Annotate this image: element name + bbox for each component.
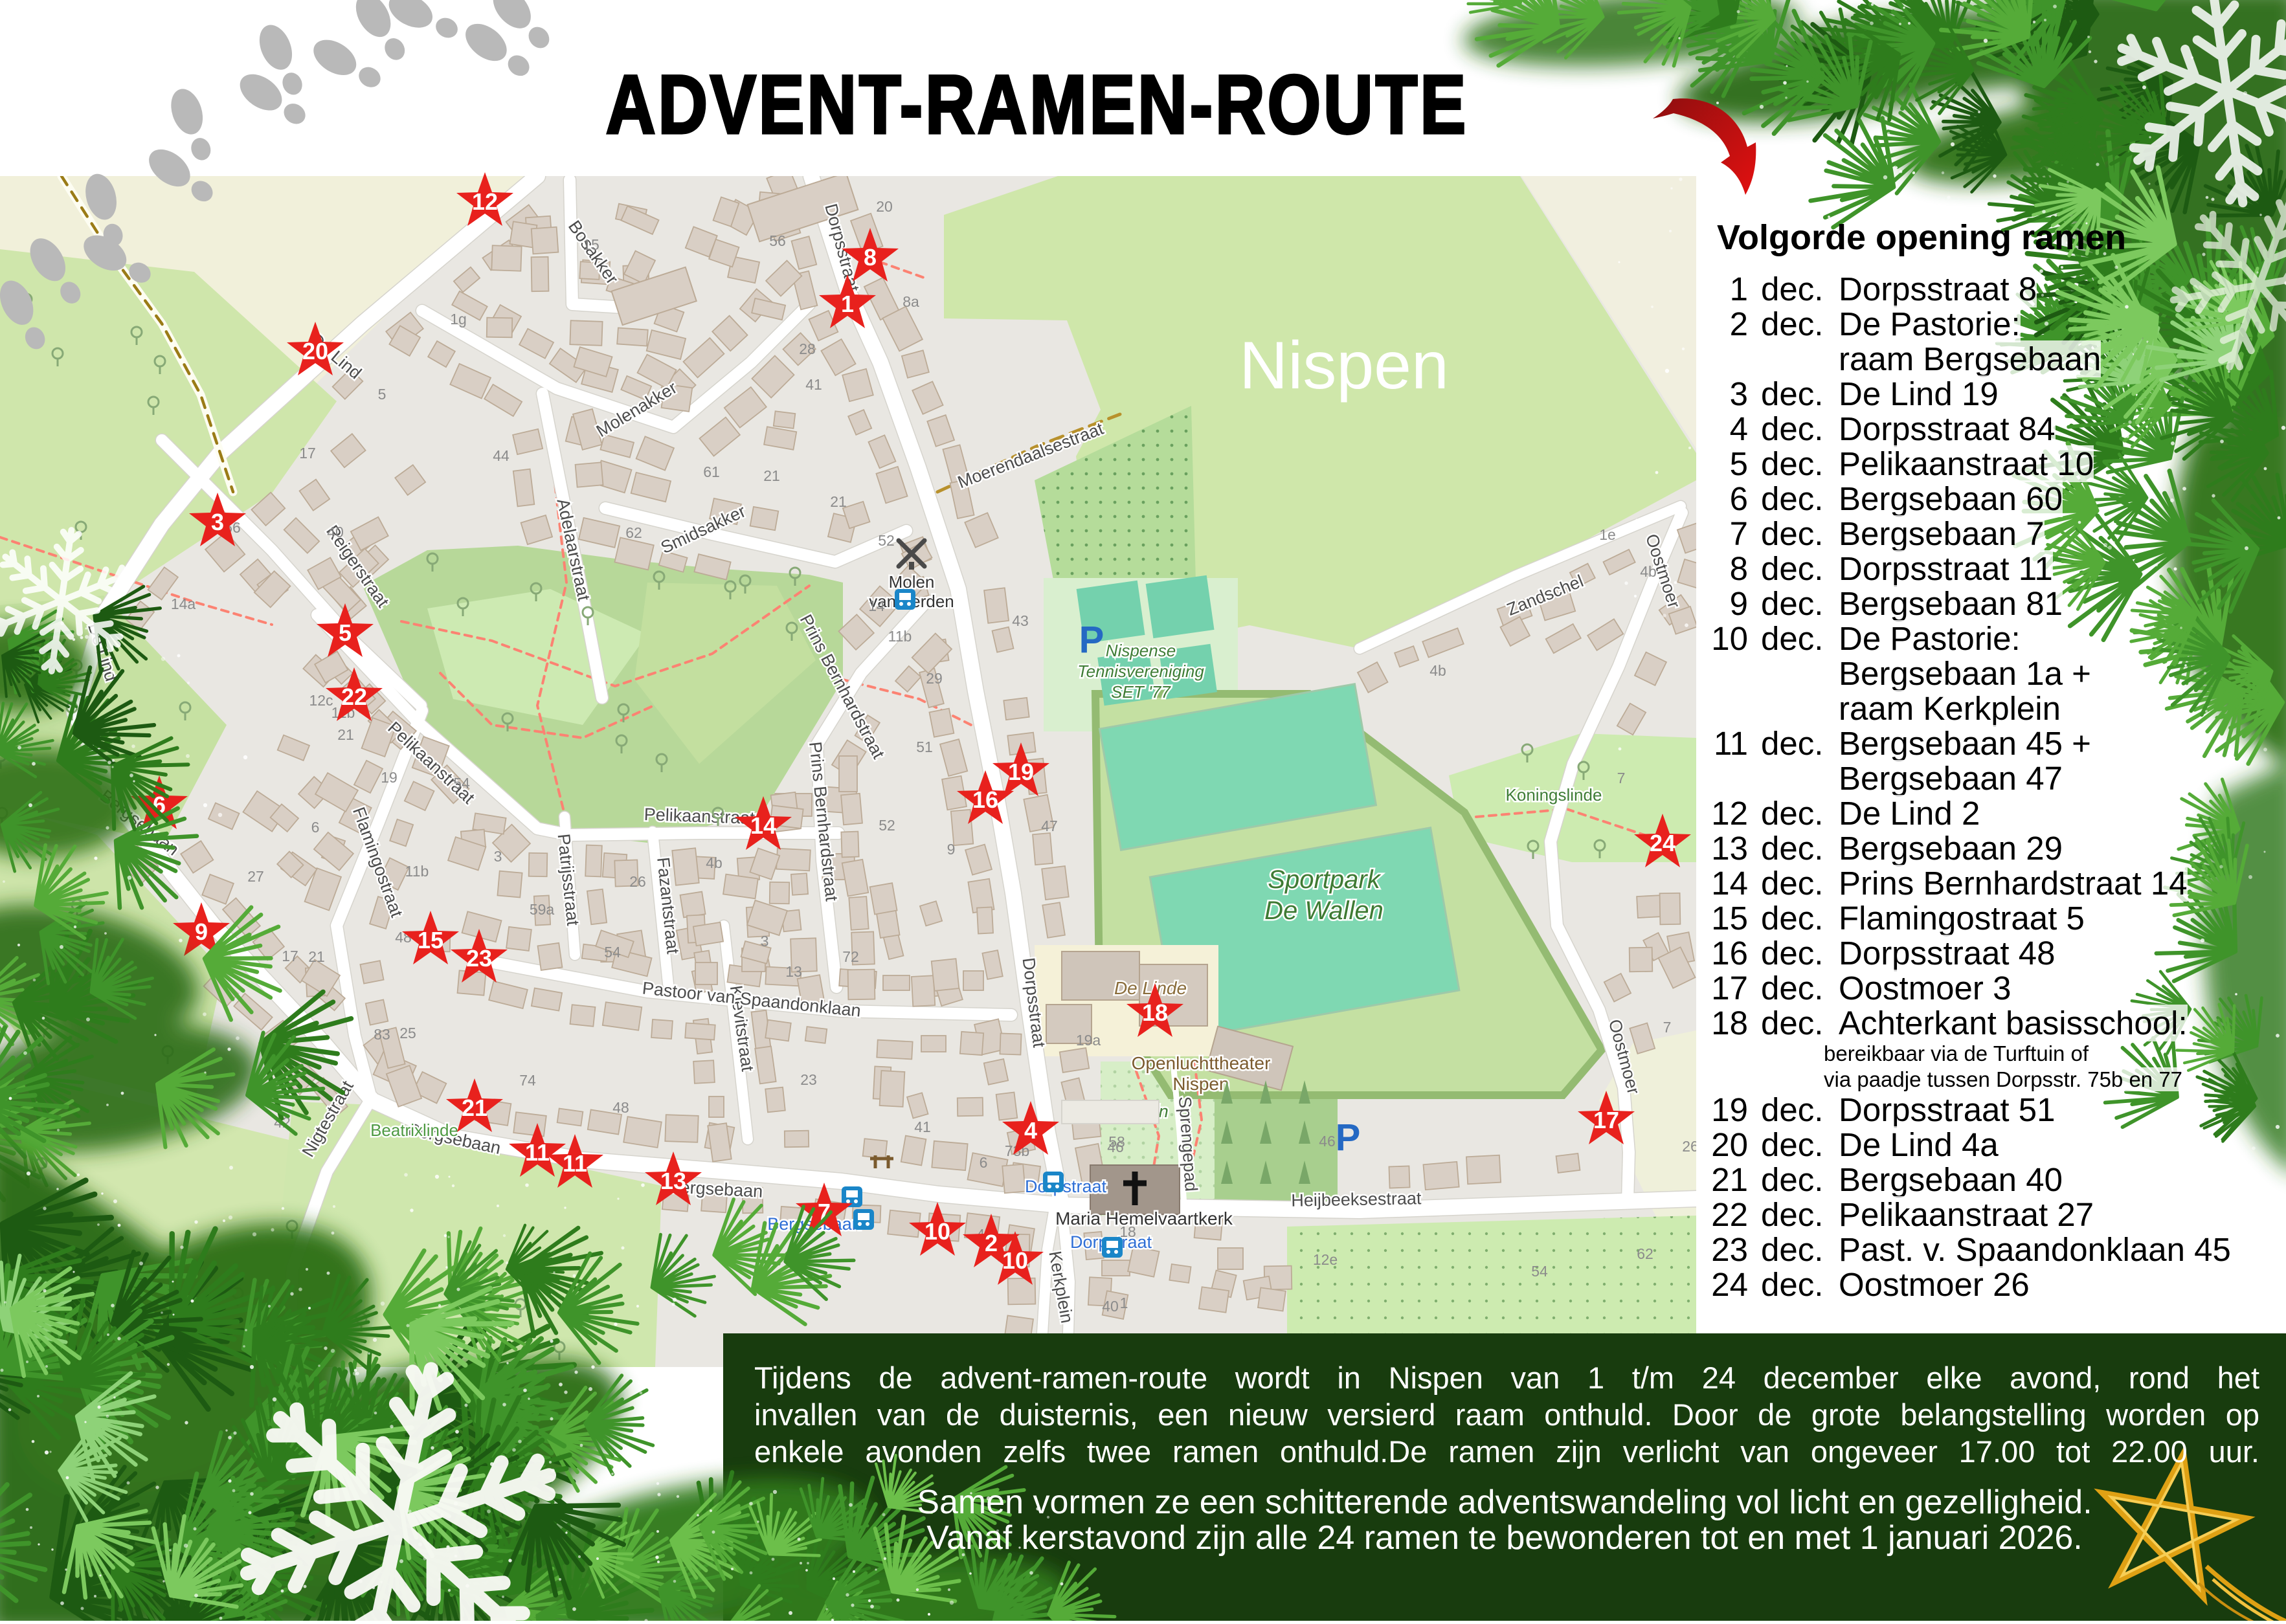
svg-text:54: 54	[453, 775, 470, 792]
svg-text:44: 44	[493, 447, 510, 464]
svg-text:Sportpark: Sportpark	[1268, 865, 1381, 894]
svg-text:28: 28	[799, 340, 816, 357]
svg-text:De Wallen: De Wallen	[1264, 896, 1384, 925]
svg-text:13: 13	[785, 963, 802, 980]
svg-text:83: 83	[374, 1026, 390, 1043]
svg-text:17: 17	[282, 948, 298, 964]
svg-text:Nispen: Nispen	[1172, 1074, 1229, 1094]
svg-text:19a: 19a	[1076, 1032, 1101, 1049]
svg-text:41: 41	[805, 376, 822, 393]
svg-text:8: 8	[864, 244, 877, 271]
svg-text:9: 9	[195, 918, 208, 945]
svg-text:17: 17	[1593, 1107, 1619, 1133]
svg-text:3: 3	[494, 848, 502, 865]
svg-text:27: 27	[247, 868, 264, 885]
svg-text:3: 3	[211, 509, 224, 535]
svg-text:52: 52	[878, 532, 895, 549]
svg-text:5: 5	[339, 619, 352, 646]
svg-text:58: 58	[1108, 1133, 1125, 1150]
svg-text:P: P	[1079, 619, 1104, 661]
svg-text:P: P	[1336, 1117, 1361, 1159]
svg-text:54: 54	[1531, 1263, 1548, 1280]
svg-text:23: 23	[466, 945, 492, 972]
svg-text:7: 7	[1617, 770, 1626, 786]
svg-text:1e: 1e	[1599, 526, 1616, 543]
svg-text:12: 12	[472, 188, 498, 215]
svg-text:8a: 8a	[902, 293, 919, 310]
svg-text:De Linde: De Linde	[1114, 978, 1187, 998]
svg-text:Maria Hemelvaartkerk: Maria Hemelvaartkerk	[1055, 1208, 1233, 1229]
svg-text:23: 23	[800, 1071, 817, 1088]
svg-text:1: 1	[1120, 1295, 1128, 1311]
svg-text:43: 43	[1012, 612, 1029, 629]
svg-text:18: 18	[1119, 1223, 1136, 1240]
svg-text:21: 21	[830, 493, 847, 510]
svg-text:11b: 11b	[405, 863, 429, 880]
svg-text:Heijbeeksestraat: Heijbeeksestraat	[1291, 1188, 1422, 1210]
svg-text:59a: 59a	[530, 901, 555, 918]
svg-text:19: 19	[1008, 759, 1034, 785]
svg-text:40: 40	[1102, 1298, 1119, 1315]
svg-text:1: 1	[841, 291, 854, 317]
svg-text:4: 4	[1024, 1117, 1037, 1144]
svg-text:Openluchttheater: Openluchttheater	[1132, 1053, 1271, 1073]
svg-text:56: 56	[769, 232, 786, 249]
svg-text:Pelikaanstraat: Pelikaanstraat	[644, 805, 756, 828]
svg-text:51: 51	[916, 739, 933, 755]
svg-text:61: 61	[703, 463, 720, 480]
svg-text:4b: 4b	[1429, 662, 1446, 679]
svg-text:62: 62	[625, 524, 642, 541]
svg-text:26: 26	[1682, 1138, 1699, 1155]
svg-text:41: 41	[914, 1118, 931, 1135]
svg-text:52: 52	[879, 817, 895, 834]
svg-text:4b: 4b	[1640, 563, 1657, 580]
svg-text:40: 40	[327, 524, 344, 540]
svg-text:22: 22	[341, 684, 367, 710]
svg-text:25: 25	[399, 1025, 416, 1041]
svg-text:6: 6	[980, 1154, 988, 1171]
svg-text:11b: 11b	[888, 628, 912, 645]
svg-text:74: 74	[519, 1072, 536, 1089]
svg-text:11: 11	[563, 1150, 587, 1177]
svg-text:Tennisvereniging: Tennisvereniging	[1077, 662, 1204, 681]
svg-text:47: 47	[1041, 818, 1058, 834]
svg-text:10: 10	[924, 1218, 950, 1245]
svg-text:17: 17	[299, 445, 316, 462]
svg-text:18: 18	[1142, 999, 1168, 1026]
svg-text:14: 14	[750, 812, 776, 839]
svg-text:54: 54	[604, 944, 621, 961]
svg-text:20: 20	[302, 338, 328, 364]
svg-text:12e: 12e	[1313, 1251, 1338, 1268]
svg-text:14a: 14a	[171, 595, 196, 612]
svg-text:19: 19	[381, 769, 398, 786]
svg-text:1g: 1g	[450, 311, 467, 328]
svg-text:10: 10	[1002, 1247, 1028, 1274]
svg-text:Koningslinde: Koningslinde	[1506, 785, 1602, 805]
svg-text:15: 15	[583, 236, 600, 253]
svg-text:72: 72	[842, 948, 859, 965]
svg-text:48: 48	[612, 1099, 629, 1116]
svg-text:4b: 4b	[706, 854, 723, 871]
svg-text:5: 5	[378, 386, 387, 403]
svg-text:Nispense: Nispense	[1106, 641, 1176, 660]
svg-text:6: 6	[311, 819, 320, 836]
svg-text:Molen: Molen	[889, 572, 935, 592]
svg-text:21: 21	[308, 948, 325, 965]
svg-text:16: 16	[972, 786, 998, 813]
svg-text:24: 24	[1650, 830, 1675, 856]
svg-text:20: 20	[876, 198, 893, 215]
svg-text:12c: 12c	[309, 692, 333, 709]
svg-text:15: 15	[418, 927, 443, 953]
svg-text:Dorpstraat: Dorpstraat	[1025, 1177, 1107, 1196]
svg-text:7: 7	[1663, 1019, 1672, 1036]
svg-text:13: 13	[660, 1168, 686, 1194]
svg-text:46: 46	[1319, 1133, 1336, 1150]
svg-text:21: 21	[763, 467, 780, 484]
svg-text:62: 62	[1637, 1245, 1653, 1262]
svg-text:Beatrixlinde: Beatrixlinde	[370, 1120, 458, 1140]
svg-text:Nispen: Nispen	[1239, 328, 1449, 403]
svg-text:11: 11	[525, 1139, 550, 1166]
svg-text:3: 3	[761, 933, 769, 950]
svg-text:26: 26	[629, 873, 646, 890]
svg-text:21: 21	[462, 1095, 487, 1121]
svg-text:SET '77: SET '77	[1111, 682, 1171, 702]
svg-text:29: 29	[926, 670, 943, 687]
svg-text:21: 21	[337, 726, 354, 743]
svg-text:14: 14	[868, 597, 885, 614]
svg-text:9: 9	[947, 841, 956, 858]
